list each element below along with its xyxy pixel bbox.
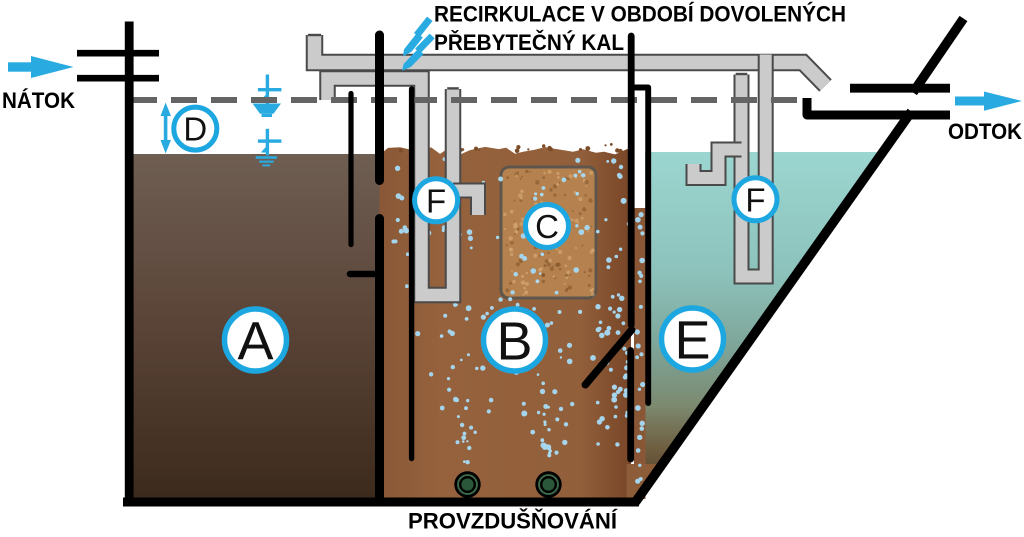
svg-text:F: F bbox=[426, 182, 446, 219]
svg-text:NÁTOK: NÁTOK bbox=[2, 88, 76, 113]
svg-text:RECIRKULACE V OBDOBÍ DOVOLENÝC: RECIRKULACE V OBDOBÍ DOVOLENÝCH bbox=[434, 2, 846, 27]
svg-text:ODTOK: ODTOK bbox=[948, 119, 1023, 144]
svg-text:PŘEBYTEČNÝ KAL: PŘEBYTEČNÝ KAL bbox=[434, 30, 624, 55]
svg-text:E: E bbox=[674, 311, 710, 371]
svg-text:C: C bbox=[535, 208, 559, 245]
svg-text:A: A bbox=[237, 312, 273, 372]
svg-text:B: B bbox=[496, 312, 532, 372]
svg-text:PROVZDUŠŇOVÁNÍ: PROVZDUŠŇOVÁNÍ bbox=[408, 509, 618, 534]
svg-text:D: D bbox=[183, 111, 207, 148]
svg-text:F: F bbox=[745, 181, 765, 218]
